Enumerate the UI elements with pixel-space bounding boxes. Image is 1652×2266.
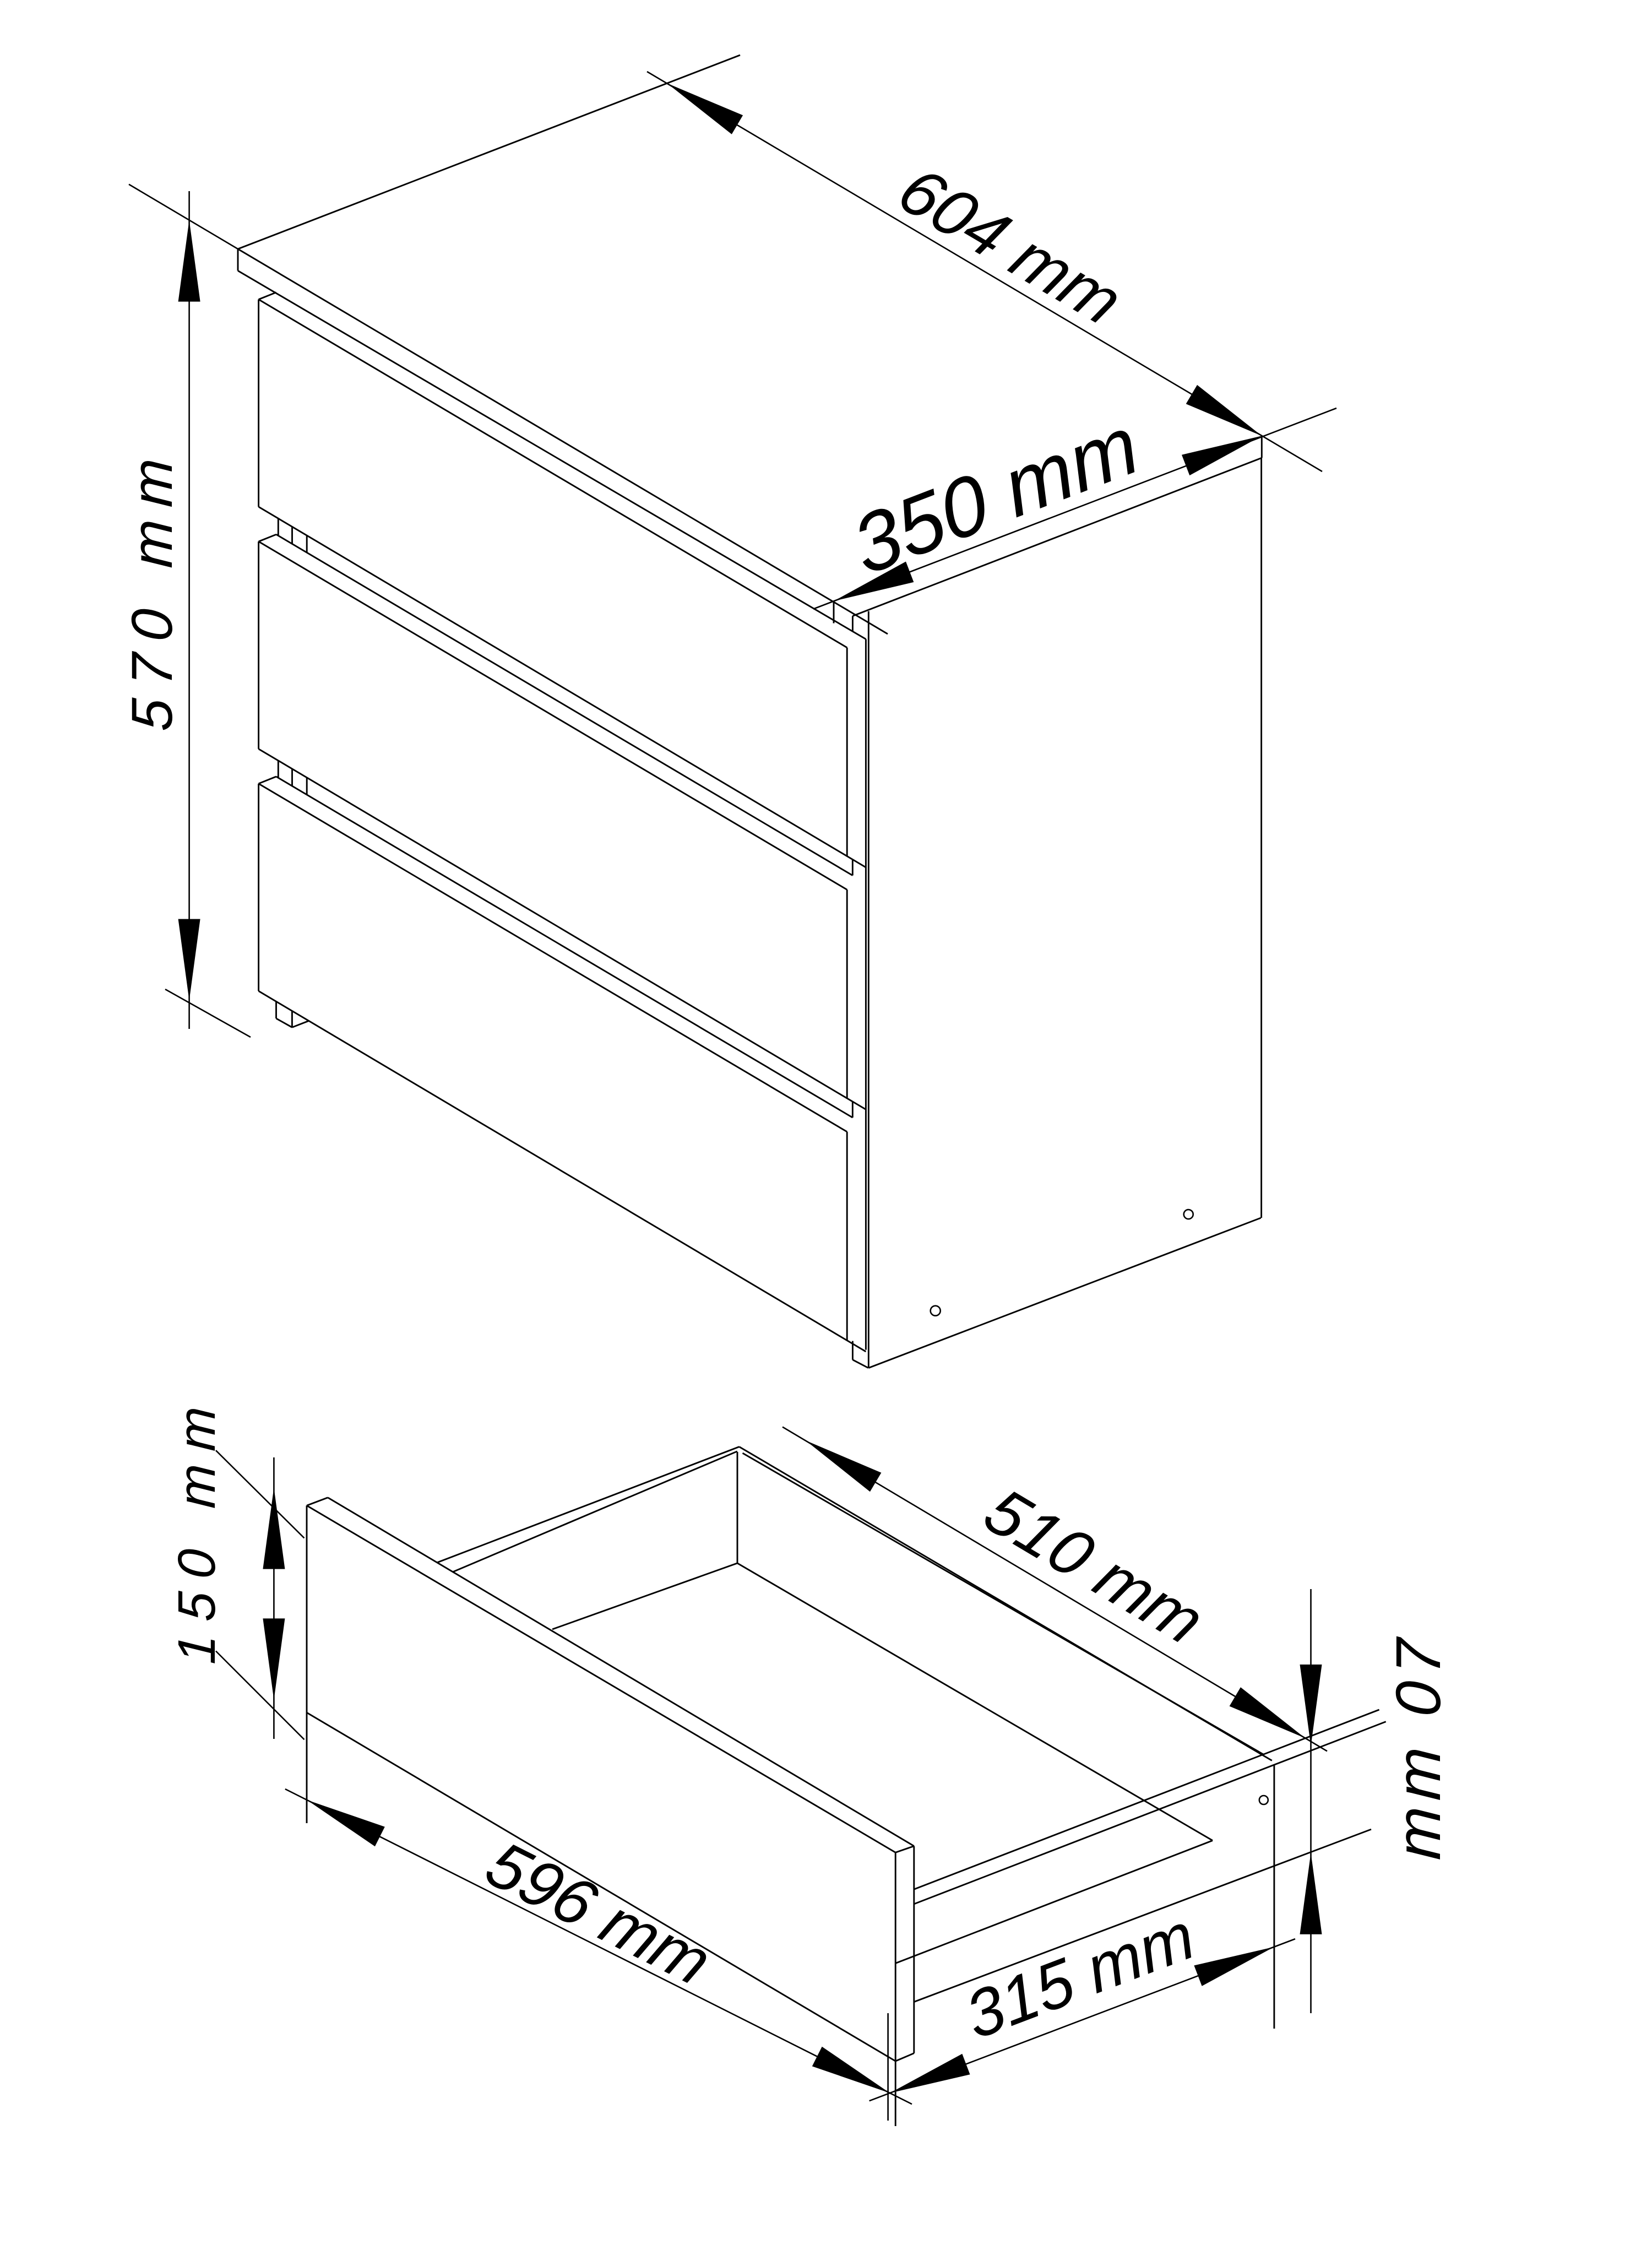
svg-text:350 mm: 350 mm bbox=[842, 397, 1149, 592]
svg-text:315 mm: 315 mm bbox=[957, 1898, 1203, 2053]
svg-text:510 mm: 510 mm bbox=[971, 1474, 1218, 1658]
svg-text:570 mm: 570 mm bbox=[120, 444, 184, 732]
svg-text:mm 07: mm 07 bbox=[1383, 1631, 1454, 1861]
svg-text:604 mm: 604 mm bbox=[885, 152, 1136, 338]
svg-text:150 mm: 150 mm bbox=[167, 1392, 226, 1665]
svg-text:596 mm: 596 mm bbox=[474, 1828, 724, 1999]
